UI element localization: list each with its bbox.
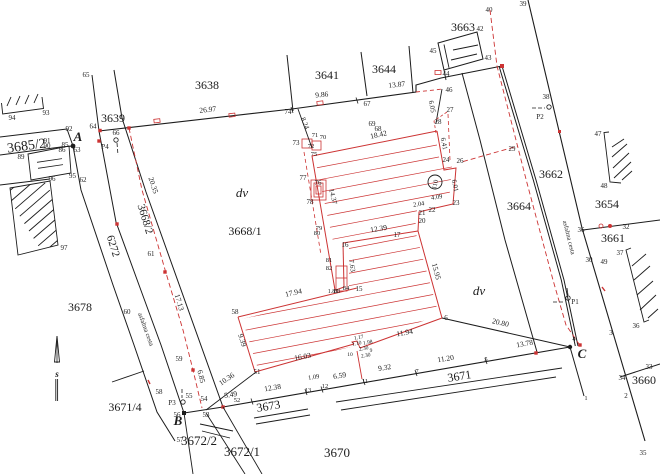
svg-text:3: 3 [609, 329, 613, 337]
svg-text:71: 71 [312, 132, 319, 139]
svg-text:3638: 3638 [195, 78, 219, 92]
svg-text:92: 92 [66, 125, 74, 133]
svg-text:9.86: 9.86 [315, 89, 329, 99]
svg-text:64: 64 [90, 123, 98, 131]
svg-text:81: 81 [326, 257, 333, 264]
svg-text:65: 65 [83, 71, 91, 79]
svg-text:84: 84 [343, 285, 350, 292]
svg-text:47: 47 [595, 130, 603, 138]
svg-text:40: 40 [486, 6, 494, 14]
svg-text:6: 6 [444, 314, 448, 322]
svg-text:66: 66 [113, 129, 121, 137]
svg-text:97: 97 [61, 244, 69, 252]
svg-text:62: 62 [80, 176, 88, 184]
svg-text:44: 44 [443, 70, 451, 78]
svg-text:C: C [578, 346, 587, 361]
svg-text:5: 5 [484, 356, 487, 363]
svg-text:3662: 3662 [539, 167, 563, 181]
svg-text:26.97: 26.97 [199, 104, 217, 115]
svg-text:86: 86 [59, 146, 67, 154]
svg-text:10: 10 [347, 352, 353, 358]
svg-text:22: 22 [429, 206, 437, 214]
svg-text:55: 55 [186, 392, 194, 400]
svg-text:15: 15 [356, 285, 364, 293]
svg-text:54: 54 [201, 395, 209, 403]
svg-text:dv: dv [473, 283, 486, 298]
svg-text:13.87: 13.87 [388, 79, 406, 90]
svg-text:37: 37 [617, 249, 625, 257]
svg-text:3672/1: 3672/1 [224, 444, 260, 459]
svg-text:90: 90 [44, 142, 52, 150]
svg-text:A: A [73, 129, 83, 144]
svg-text:3660: 3660 [632, 373, 656, 387]
svg-text:P4: P4 [101, 143, 109, 151]
svg-text:P1: P1 [571, 298, 579, 306]
svg-text:28: 28 [435, 118, 443, 126]
svg-text:76: 76 [315, 179, 323, 187]
svg-text:34: 34 [619, 374, 627, 382]
svg-text:38: 38 [543, 93, 551, 101]
svg-text:2: 2 [624, 392, 628, 400]
svg-text:3670: 3670 [324, 445, 350, 460]
svg-text:45: 45 [430, 47, 438, 55]
svg-text:3663: 3663 [451, 20, 475, 34]
svg-text:75: 75 [311, 151, 318, 158]
svg-text:56: 56 [174, 411, 182, 419]
svg-text:3678: 3678 [68, 300, 92, 314]
svg-text:3668/1: 3668/1 [228, 224, 261, 238]
svg-text:3661: 3661 [601, 231, 625, 245]
svg-text:3654: 3654 [595, 197, 619, 211]
svg-text:82: 82 [326, 265, 333, 272]
svg-text:59: 59 [176, 355, 184, 363]
svg-text:35: 35 [640, 449, 648, 457]
svg-text:11: 11 [362, 378, 368, 385]
svg-text:48: 48 [601, 182, 609, 190]
svg-text:29: 29 [509, 145, 517, 153]
svg-text:30: 30 [586, 256, 594, 264]
svg-text:61: 61 [148, 250, 156, 258]
svg-text:3641: 3641 [315, 68, 339, 82]
svg-text:24: 24 [443, 156, 451, 164]
svg-text:27: 27 [447, 106, 455, 114]
svg-text:13: 13 [305, 387, 312, 394]
svg-text:95: 95 [69, 172, 77, 180]
svg-text:26: 26 [457, 157, 465, 165]
svg-text:77: 77 [300, 174, 308, 182]
svg-text:70: 70 [320, 134, 327, 141]
svg-text:43: 43 [485, 54, 493, 62]
svg-text:21: 21 [419, 209, 427, 217]
svg-text:P2: P2 [536, 113, 544, 121]
svg-text:72: 72 [308, 143, 315, 150]
svg-text:39: 39 [520, 0, 528, 8]
svg-text:P3: P3 [168, 399, 176, 407]
svg-text:58: 58 [232, 308, 240, 316]
svg-text:49: 49 [601, 258, 609, 266]
svg-text:74: 74 [285, 108, 293, 116]
svg-text:3672/2: 3672/2 [181, 433, 217, 448]
svg-text:3644: 3644 [372, 62, 396, 76]
svg-text:46: 46 [446, 86, 454, 94]
svg-text:94: 94 [9, 114, 17, 122]
svg-text:51: 51 [254, 368, 262, 376]
svg-text:1: 1 [584, 395, 587, 402]
svg-text:78: 78 [307, 198, 315, 206]
svg-text:3664: 3664 [507, 199, 531, 213]
svg-text:93: 93 [43, 109, 51, 117]
svg-text:80: 80 [314, 230, 321, 237]
svg-text:42: 42 [477, 25, 485, 33]
svg-text:1.83: 1.83 [328, 289, 339, 295]
svg-text:36: 36 [633, 322, 641, 330]
svg-text:s: s [54, 369, 59, 379]
svg-text:60: 60 [124, 308, 132, 316]
svg-text:12: 12 [322, 383, 329, 390]
svg-text:89: 89 [18, 153, 26, 161]
svg-text:dv: dv [236, 185, 249, 200]
svg-text:17: 17 [394, 231, 402, 239]
svg-text:33: 33 [646, 363, 654, 371]
svg-text:32: 32 [623, 223, 631, 231]
svg-text:58: 58 [156, 388, 164, 396]
svg-text:73: 73 [293, 139, 301, 147]
svg-text:23: 23 [453, 199, 461, 207]
svg-text:36: 36 [578, 226, 586, 234]
svg-text:67: 67 [364, 100, 372, 108]
svg-text:16: 16 [342, 241, 350, 249]
svg-text:20: 20 [419, 217, 427, 225]
svg-text:3671/4: 3671/4 [108, 400, 141, 414]
